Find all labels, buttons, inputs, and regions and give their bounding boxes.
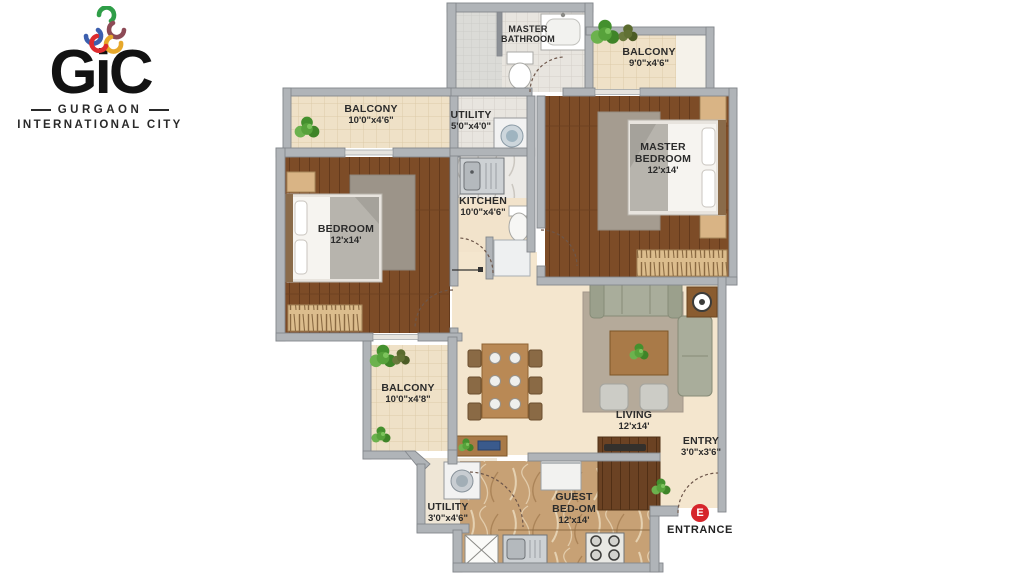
entrance-marker: E xyxy=(691,504,709,522)
room-label-utility-top: UTILITY 5'0"x4'0" xyxy=(450,110,491,132)
utility-bottom-washing-machine xyxy=(444,462,480,499)
gic-logo-swirl-icon xyxy=(78,6,132,54)
room-label-entry: ENTRY 3'0"x3'6" xyxy=(681,436,721,458)
gic-logo: GiC GURGAON INTERNATIONAL CITY xyxy=(8,6,192,131)
dining-set xyxy=(468,344,542,420)
room-label-balcony-top-right: BALCONY 9'0"x4'6" xyxy=(622,47,675,69)
living-furniture xyxy=(583,278,717,412)
room-label-balcony-top-left: BALCONY 10'0"x4'6" xyxy=(344,104,397,126)
brand-tagline: INTERNATIONAL CITY xyxy=(8,119,192,131)
room-label-master-bathroom: MASTER BATHROOM xyxy=(501,24,555,44)
room-label-kitchen: KITCHEN 10'0"x4'6" xyxy=(459,196,507,218)
room-label-bedroom: BEDROOM 12'x14' xyxy=(318,224,374,246)
room-label-living: LIVING 12'x14' xyxy=(616,410,652,432)
room-label-master-bedroom: MASTER BEDROOM 12'x14' xyxy=(635,142,691,176)
room-label-balcony-bottom-left: BALCONY 10'0"x4'8" xyxy=(381,383,434,405)
room-label-utility-bottom: UTILITY 3'0"x4'6" xyxy=(427,502,468,524)
left-dash xyxy=(31,109,51,111)
brand-city: GURGAON xyxy=(58,104,143,116)
brand-subtitle-row: GURGAON xyxy=(8,104,192,116)
floorplan-page: GiC GURGAON INTERNATIONAL CITY MASTER BA… xyxy=(0,0,1024,576)
entrance-label: ENTRANCE xyxy=(667,524,733,536)
right-dash xyxy=(149,109,169,111)
room-label-guest-bedroom: GUEST BED-OM 12'x14' xyxy=(552,492,596,526)
